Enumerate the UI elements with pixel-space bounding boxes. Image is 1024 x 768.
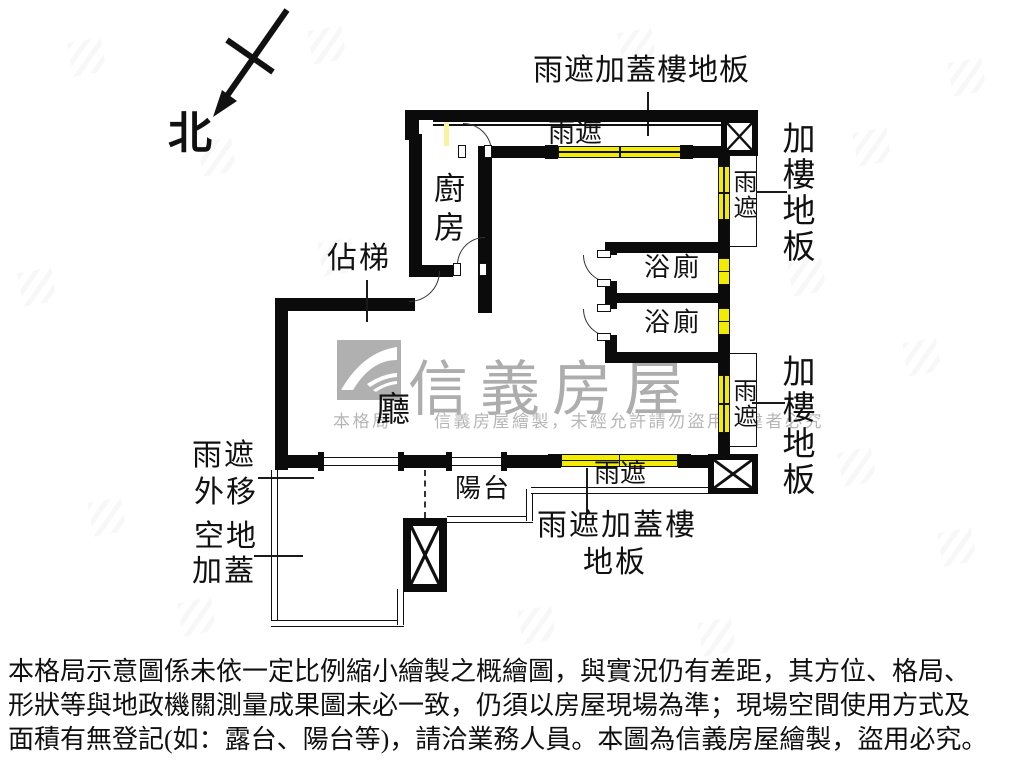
bottom-awning-label: 雨遮 [594,461,646,487]
window-mullion [719,271,729,273]
wall [404,455,448,468]
wall [680,145,693,159]
annotation-pointer-line [366,280,368,322]
annotation-pointer-line [586,468,588,515]
wall [275,455,322,468]
faint-watermark-mark [937,527,976,566]
window-mullion [619,147,621,157]
wall [318,452,324,471]
wall [446,452,452,471]
living-room-label: 廳 [376,394,410,428]
awning-window [718,258,730,285]
window-mullion [719,321,729,323]
watermark-line-suffix: 信義房屋繪製，未經允許請勿盜用，違者必究 [434,407,824,432]
door-leaf [458,145,466,158]
left-annotation-line1: 雨遮 [192,441,256,471]
boundary-dashed-line [424,470,426,518]
door-leaf [453,263,461,276]
wall [275,298,415,311]
open-area-outline [397,589,404,625]
door-leaf [597,333,611,341]
faint-watermark-mark [947,57,986,96]
kitchen-label: 廚房 [431,172,462,262]
faint-watermark-mark [852,127,891,166]
window [322,457,400,466]
right-lower-awning-label: 雨遮 [730,378,754,436]
door-arc [409,271,440,302]
door-leaf [597,279,611,287]
x-column-marker [403,518,447,592]
faint-watermark-mark [307,25,346,64]
faint-watermark-mark [87,497,126,536]
bottom-awning-annotation-line1: 雨遮加蓋樓 [537,511,697,541]
faint-watermark-mark [17,267,56,306]
window-mullion [723,167,725,219]
annotation-pointer-line [258,477,314,479]
open-area-outline [271,470,278,627]
north-arrow-icon [140,0,310,170]
wall [505,455,549,468]
wall [548,454,561,468]
bottom-awning-annotation-line2: 地板 [583,548,647,578]
wall [678,454,691,468]
wall [605,242,718,253]
wall [398,452,404,471]
wall [501,452,507,471]
disclaimer-line1: 本格局示意圖係未依一定比例縮小繪製之概繪圖，與實況仍有差距，其方位、格局、 [8,655,987,689]
faint-watermark-mark [177,597,216,636]
faint-watermark-mark [902,337,941,376]
left-annotation-line3: 空地 [194,522,258,552]
wall [605,352,718,363]
top-awning-annotation: 雨遮加蓋樓地板 [533,56,750,86]
awning-window [718,308,730,335]
faint-watermark-mark [67,37,106,76]
window [452,457,503,466]
door-leaf [479,263,487,276]
open-area-outline [271,620,404,627]
wall [605,293,718,303]
bathroom2-label: 浴廁 [644,310,702,336]
disclaimer-text: 本格局示意圖係未依一定比例縮小繪製之概繪圖，與實況仍有差距，其方位、格局、 形狀… [8,655,987,757]
bathroom1-label: 浴廁 [644,255,702,281]
window-mullion [723,376,725,432]
left-annotation-line2: 外移 [194,478,258,508]
balcony-outline [447,516,533,523]
faint-watermark-mark [517,605,556,644]
faint-watermark-mark [697,617,736,656]
awning-strip [444,122,449,146]
faint-watermark-mark [837,447,876,486]
wall [492,146,545,158]
disclaimer-line2: 形狀等與地政機關測量成果圖未必一致，仍須以房屋現場為準；現場空間使用方式及 [8,689,987,723]
disclaimer-line3: 面積有無登記(如：露台、陽台等)，請洽業務人員。本圖為信義房屋繪製，盜用必究。 [8,723,987,757]
balcony-outline [531,487,708,494]
x-column-marker [708,454,758,494]
right-lower-floor-annotation: 加樓地板 [778,354,811,504]
door-leaf [484,145,492,158]
stairs-annotation: 佔梯 [327,244,391,274]
wall [275,298,288,470]
left-annotation-line4: 加蓋 [192,557,256,587]
sinyi-logo-icon [337,340,401,400]
north-label: 北 [168,112,212,156]
door-leaf [597,250,611,258]
floor-plan-image: 信義房屋 本格局 信義房屋繪製，未經允許請勿盜用，違者必究 北 雨遮加蓋樓地板 … [0,0,1024,768]
top-awning-label: 雨遮 [548,120,602,147]
right-upper-floor-annotation: 加樓地板 [778,121,811,271]
wall [478,146,492,313]
wall [409,134,422,277]
x-column-marker [721,117,758,156]
door-leaf [597,304,611,312]
right-upper-awning-label: 雨遮 [730,169,754,227]
balcony-label: 陽台 [455,476,511,502]
annotation-pointer-line [254,555,303,557]
